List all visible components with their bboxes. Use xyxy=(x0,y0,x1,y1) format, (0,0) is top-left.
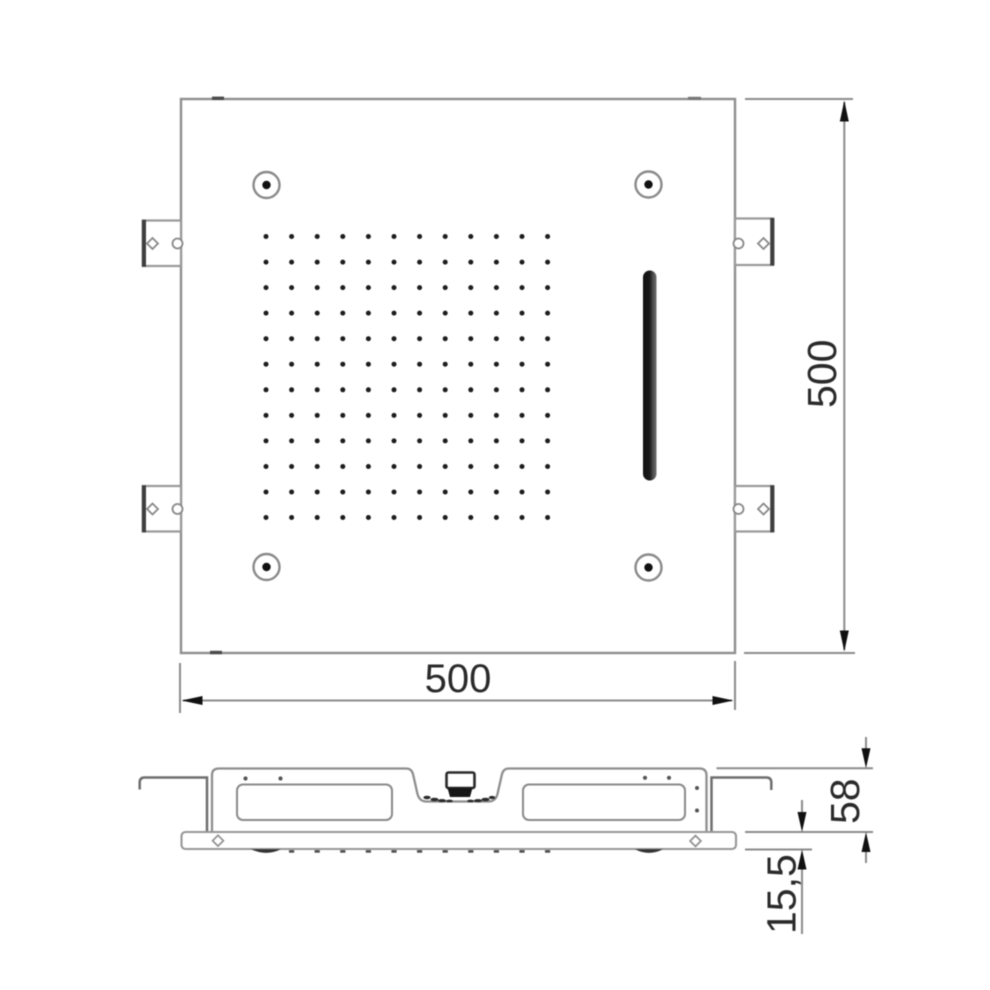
svg-text:500: 500 xyxy=(425,657,492,701)
svg-text:15,5: 15,5 xyxy=(759,854,805,934)
svg-text:500: 500 xyxy=(799,340,845,408)
svg-text:58: 58 xyxy=(822,778,868,824)
